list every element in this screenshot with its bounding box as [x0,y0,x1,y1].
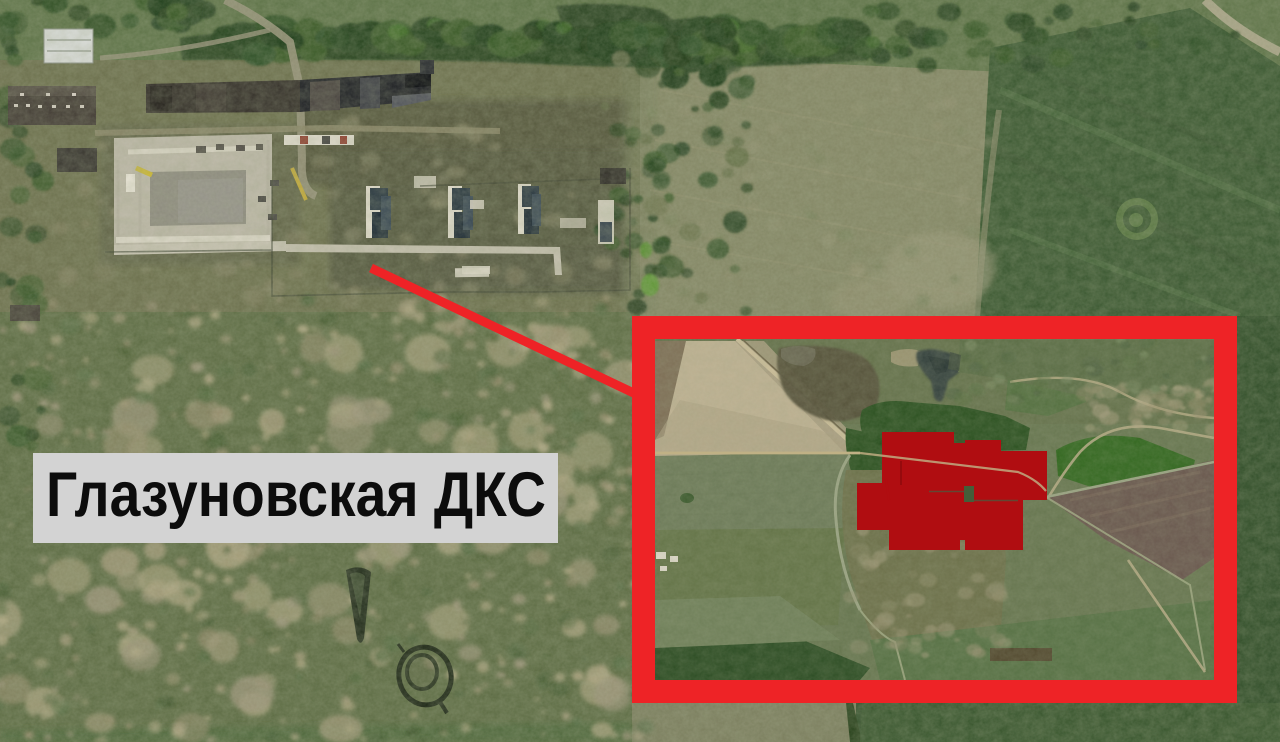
svg-text:Глазуновская ДКС: Глазуновская ДКС [46,460,546,530]
